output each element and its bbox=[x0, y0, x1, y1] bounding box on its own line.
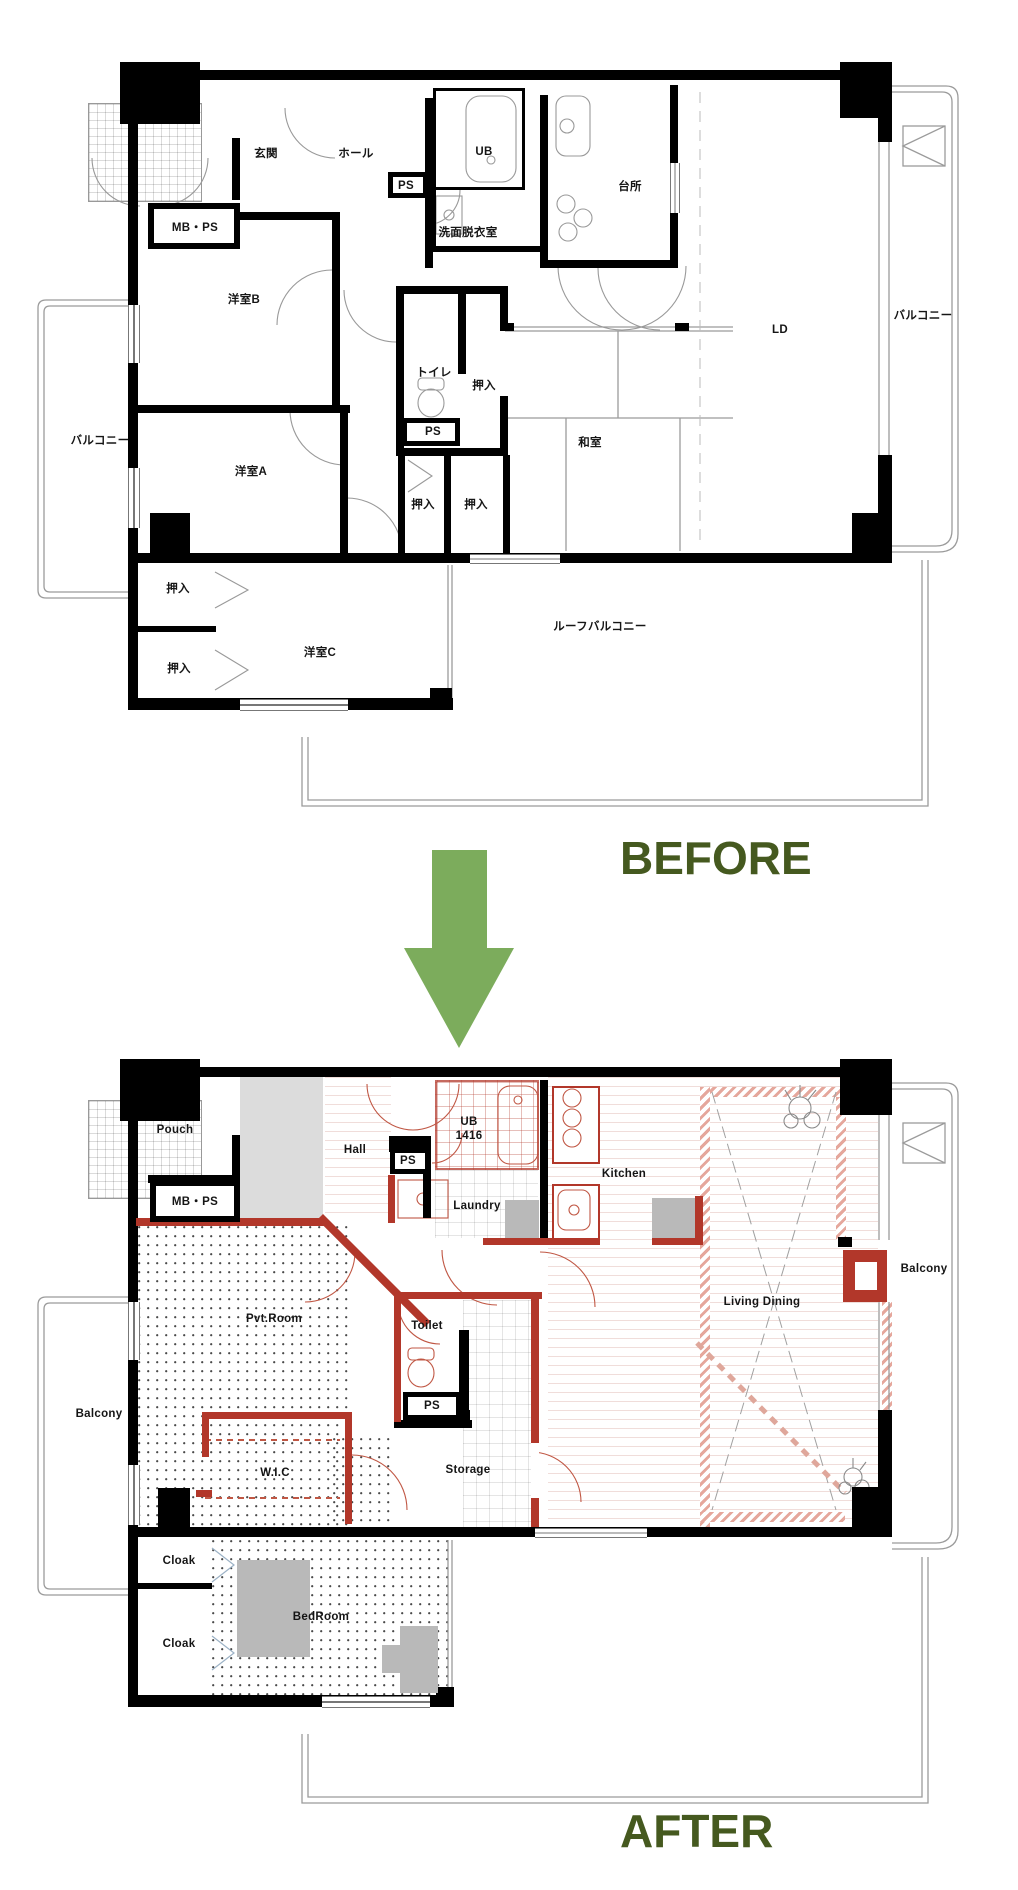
wall bbox=[128, 1537, 138, 1697]
kitchen-pillar bbox=[652, 1198, 695, 1238]
unit-bath-tiles bbox=[435, 1080, 539, 1170]
room-label-oshiire: 押入 bbox=[166, 580, 190, 596]
wall bbox=[444, 455, 451, 553]
window bbox=[128, 1465, 140, 1525]
window bbox=[128, 468, 140, 528]
room-label-bedroom: BedRoom bbox=[293, 1611, 349, 1623]
wall bbox=[838, 1237, 852, 1247]
room-label-daidokoro: 台所 bbox=[618, 178, 642, 194]
wall bbox=[396, 448, 508, 456]
wall bbox=[540, 1080, 548, 1240]
door-opening bbox=[531, 1443, 539, 1498]
wall bbox=[125, 70, 892, 80]
room-label-living-dining: Living Dining bbox=[724, 1296, 801, 1308]
room-label-hall-jp: ホール bbox=[338, 145, 373, 161]
room-label-yoshitsu-c: 洋室C bbox=[304, 644, 336, 660]
wall bbox=[430, 688, 452, 710]
down-arrow-icon bbox=[404, 948, 514, 1048]
wall bbox=[138, 626, 216, 632]
living-hatch-border bbox=[700, 1512, 845, 1522]
living-hatch-border bbox=[700, 1087, 710, 1527]
window bbox=[322, 1696, 430, 1708]
room-label-toilet: Toilet bbox=[411, 1320, 443, 1332]
room-label-laundry: Laundry bbox=[453, 1200, 500, 1212]
room-label-oshiire: 押入 bbox=[464, 496, 488, 512]
kitchen-sink-counter bbox=[552, 1184, 600, 1240]
kitchen-stove-counter bbox=[552, 1086, 600, 1164]
room-label-senmen: 洗面脱衣室 bbox=[439, 224, 498, 240]
unit-bath-box bbox=[433, 88, 525, 190]
wall bbox=[150, 513, 190, 557]
room-label-ub-size: 1416 bbox=[456, 1130, 483, 1142]
room-label-balcony-left: Balcony bbox=[76, 1408, 123, 1420]
window bbox=[535, 1528, 647, 1538]
after-title: AFTER bbox=[620, 1804, 773, 1858]
room-label-mb-ps: MB・PS bbox=[172, 1193, 218, 1209]
wall bbox=[878, 455, 892, 515]
room-label-yoshitsu-a: 洋室A bbox=[235, 463, 267, 479]
wall bbox=[500, 396, 508, 456]
wall bbox=[398, 455, 405, 553]
room-label-ps: PS bbox=[424, 1400, 440, 1412]
wall bbox=[545, 260, 678, 268]
red-wall bbox=[394, 1292, 542, 1299]
wall bbox=[436, 1687, 454, 1707]
wall bbox=[128, 563, 138, 703]
red-wall bbox=[196, 1490, 212, 1497]
window bbox=[240, 699, 348, 711]
wall bbox=[670, 85, 678, 163]
room-label-storage: Storage bbox=[446, 1464, 491, 1476]
room-label-kitchen: Kitchen bbox=[602, 1168, 646, 1180]
wall bbox=[340, 405, 348, 555]
room-label-ub: UB bbox=[475, 146, 492, 158]
window bbox=[670, 163, 680, 213]
wall bbox=[500, 323, 514, 331]
wall bbox=[230, 212, 340, 220]
wall bbox=[128, 405, 350, 413]
wall bbox=[125, 1067, 892, 1077]
wall bbox=[878, 112, 892, 142]
red-wall bbox=[202, 1412, 352, 1419]
window bbox=[128, 1302, 140, 1360]
room-label-balcony-right: バルコニー bbox=[894, 307, 953, 323]
wall bbox=[396, 286, 508, 294]
wall bbox=[332, 212, 340, 412]
red-wall bbox=[394, 1292, 401, 1422]
room-label-ps: PS bbox=[400, 1155, 416, 1167]
room-label-balcony-left: バルコニー bbox=[71, 432, 130, 448]
red-wall bbox=[202, 1412, 209, 1457]
room-label-yoshitsu-b: 洋室B bbox=[228, 291, 260, 307]
entry-floor-gray-area bbox=[240, 1077, 323, 1220]
living-hatch-border bbox=[836, 1097, 846, 1242]
wall bbox=[430, 190, 436, 248]
wall bbox=[128, 1583, 212, 1589]
washing-machine bbox=[505, 1200, 539, 1238]
room-label-roof-balcony: ルーフバルコニー bbox=[553, 618, 646, 634]
pvt-room-floor-dots bbox=[138, 1226, 352, 1527]
wall bbox=[128, 1527, 892, 1537]
wall bbox=[232, 138, 240, 200]
room-label-cloak: Cloak bbox=[163, 1638, 196, 1650]
wall bbox=[503, 455, 510, 553]
wall bbox=[158, 1488, 190, 1530]
room-label-washitsu: 和室 bbox=[578, 434, 602, 450]
pvt-room-floor-dots bbox=[333, 1438, 393, 1527]
red-wall bbox=[695, 1196, 703, 1245]
room-label-ps: PS bbox=[398, 180, 414, 192]
window bbox=[128, 305, 140, 363]
bed bbox=[237, 1560, 310, 1657]
red-wall bbox=[388, 1175, 395, 1223]
wall bbox=[840, 62, 892, 118]
wall bbox=[430, 246, 548, 252]
wall bbox=[458, 286, 466, 374]
room-label-pouch: Pouch bbox=[157, 1124, 194, 1136]
room-label-hall: Hall bbox=[344, 1144, 366, 1156]
red-wall bbox=[345, 1412, 352, 1524]
wall bbox=[540, 95, 548, 268]
room-label-toilet-jp: トイレ bbox=[416, 364, 451, 380]
down-arrow-icon bbox=[432, 850, 487, 950]
wall bbox=[675, 323, 689, 331]
room-label-mb-ps: MB・PS bbox=[172, 219, 218, 235]
renovation-before-after-diagram: 玄関 ホール UB PS 台所 洗面脱衣室 MB・PS 洋室B LD バルコニー… bbox=[0, 0, 1018, 1890]
balcony-storage-inner bbox=[855, 1262, 877, 1290]
living-hatch-border bbox=[703, 1087, 845, 1097]
wall bbox=[670, 213, 678, 266]
before-title: BEFORE bbox=[620, 831, 812, 885]
storage-tile-floor bbox=[463, 1300, 531, 1527]
room-label-wic: W.I.C bbox=[260, 1467, 290, 1479]
room-label-genkan: 玄関 bbox=[254, 145, 278, 161]
wall bbox=[840, 1059, 892, 1115]
room-label-pvt-room: Pvt.Room bbox=[246, 1313, 302, 1325]
room-label-oshiire: 押入 bbox=[411, 496, 435, 512]
red-wall bbox=[483, 1238, 600, 1245]
room-label-oshiire: 押入 bbox=[167, 660, 191, 676]
room-label-ub: UB bbox=[460, 1116, 477, 1128]
plan-linework bbox=[0, 0, 1018, 1890]
side-table bbox=[382, 1645, 408, 1673]
window bbox=[470, 554, 560, 564]
red-wall bbox=[652, 1238, 698, 1245]
room-label-balcony-right: Balcony bbox=[901, 1263, 948, 1275]
room-label-oshiire: 押入 bbox=[472, 377, 496, 393]
wall bbox=[878, 1410, 892, 1487]
room-label-ps: PS bbox=[425, 426, 441, 438]
room-label-cloak: Cloak bbox=[163, 1555, 196, 1567]
room-label-ld: LD bbox=[772, 324, 788, 336]
